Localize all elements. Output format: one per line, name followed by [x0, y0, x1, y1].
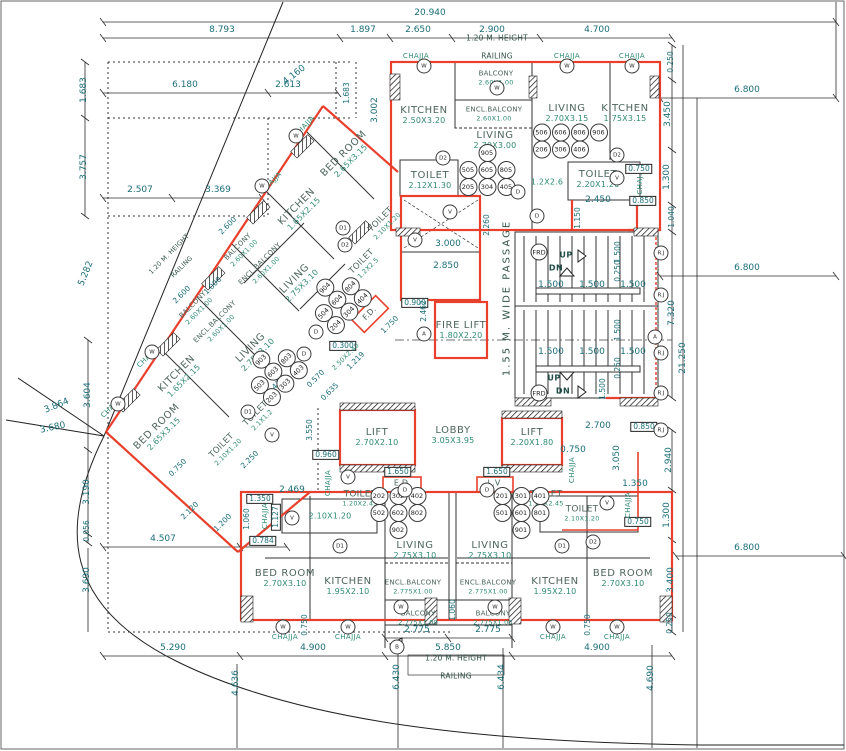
room-living-tr: LIVING 2.70X3.15	[546, 97, 589, 123]
dim-2462: 2.462	[420, 300, 428, 321]
dim-tread-v2: 1.500	[614, 319, 622, 340]
dim-6430: 6.430	[393, 664, 403, 690]
vent-mark: V	[265, 428, 280, 443]
dim-1300-b: 1.300	[663, 502, 673, 528]
stair-up-2: UP	[547, 375, 560, 384]
room-encl-balcony-br: ENCL.BALCONY 2.775X1.00	[460, 571, 516, 596]
room-bedroom-bl: BED ROOM 2.70X3.10	[255, 562, 315, 588]
railing-note-bottom: 1.20 M. HEIGHT RAILING	[425, 646, 487, 681]
chaj-right-top: CHAJ.	[637, 173, 645, 194]
room-toilet-bl: 2.10X1.20	[309, 513, 352, 522]
a-mark: A	[648, 330, 663, 345]
dim-1040: 1.040	[668, 206, 676, 227]
door-mark: D	[398, 483, 413, 498]
door-mark: D	[511, 185, 526, 200]
dim-tread-2: 1.500	[579, 281, 605, 291]
dim-tread-1: 1.500	[538, 281, 564, 291]
dim-4507: 4.507	[150, 535, 176, 545]
vent-mark: V	[341, 470, 356, 485]
dim-2260: 2.260	[483, 214, 491, 235]
room-bedroom-br: BED ROOM 2.70X3.10	[593, 562, 653, 588]
room-kitchen-br: KITCHEN 1.95X2.10	[531, 570, 579, 596]
dim-3400: 3.400	[667, 567, 677, 593]
rj-mark: R.J	[654, 346, 669, 361]
window-mark: W	[546, 620, 561, 635]
dim-2775-r: 2.775	[475, 626, 501, 636]
dim-1683-inner: 1.683	[343, 82, 351, 103]
window-mark: W	[289, 129, 304, 144]
unit-cluster-bottom-right: 201301401 501601801 901	[493, 488, 550, 538]
vent-mark: V	[610, 171, 625, 186]
rj-mark: R.J	[654, 423, 669, 438]
window-mark: W	[610, 620, 625, 635]
dim-0960: 0.960	[312, 450, 339, 460]
rj-mark: R.J	[654, 288, 669, 303]
chajja-bot-2: CHAJJA	[335, 634, 361, 642]
stair-up-1: UP	[559, 252, 572, 261]
dim-1150: 1.150	[574, 207, 582, 228]
dim-top-4700: 4.700	[584, 26, 610, 36]
dim-4690: 4.690	[647, 665, 657, 691]
dim-1060-balc: 1.060	[449, 599, 457, 620]
door-mark: D	[530, 209, 545, 224]
door1-mark: D1	[336, 221, 351, 236]
chajja-bot-3: CHAJJA	[540, 634, 566, 642]
dim-mid-v2: 0.250	[614, 357, 622, 378]
fire-door-mark: FRD	[531, 385, 548, 402]
fire-door-mark: FRD	[531, 244, 548, 261]
dim-3604: 3.604	[84, 382, 94, 408]
room-encl-balcony-bl: ENCL.BALCONY 2.775X1.00	[385, 571, 441, 596]
door2-mark: D2	[610, 148, 625, 163]
dim-top-1897: 1.897	[350, 26, 376, 36]
room-fire-lift: FIRE LIFT 1.80X2.20	[436, 314, 487, 340]
a-mark: A	[417, 327, 432, 342]
dim-mid-v1: 0.250	[614, 260, 622, 281]
dim-4636: 4.636	[232, 670, 242, 696]
room-name: KITCHEN	[400, 105, 448, 116]
vent-mark: V	[443, 205, 458, 220]
dim-3690: 3.690	[83, 567, 93, 593]
dim-tread-4: 1.500	[538, 348, 564, 358]
window-mark: W	[560, 59, 575, 74]
dim-top-8793: 8.793	[209, 26, 235, 36]
dim-1683-left: 1.683	[80, 77, 90, 103]
unit-cluster-bottom-left: 202302402 502602802 902	[370, 488, 427, 538]
dim-2450: 2.450	[585, 196, 611, 206]
dim-0750-br: 0.750	[584, 614, 592, 635]
dim-tread-3: 1.500	[620, 281, 646, 291]
dim-tread-5: 1.500	[579, 348, 605, 358]
dim-0250-bot: 0.250	[666, 612, 674, 633]
door1-mark: D1	[241, 405, 256, 420]
window-mark: W	[255, 179, 270, 194]
chajja-bot-1: CHAJJA	[272, 634, 298, 642]
door1-mark: D1	[333, 539, 348, 554]
stair-dn-1: DN	[549, 265, 563, 274]
door-mark: D	[297, 347, 312, 362]
dim-6180: 6.180	[172, 81, 198, 91]
room-toilet-tc: TOILET 2.12X1.30	[409, 164, 452, 190]
rj-mark: R.J	[654, 246, 669, 261]
passage-label: 1.55 M. WIDE PASSAGE	[502, 220, 513, 376]
window-mark: W	[490, 81, 505, 96]
dim-6800-top: 6.800	[734, 86, 760, 96]
vent-mark: V	[285, 511, 300, 526]
dim-3050: 3.050	[613, 445, 623, 471]
door2-mark: D2	[436, 151, 451, 166]
chajja-w5: CHAJJA	[262, 503, 270, 529]
railing-note-top: 1.20 M. HEIGHT RAILING	[466, 26, 528, 61]
dim-1300-a: 1.300	[663, 164, 673, 190]
window-mark: W	[394, 600, 409, 615]
chajja-lobby-right1: CHAJJA	[569, 457, 577, 483]
dim-tread-6: 1.500	[620, 348, 646, 358]
dim-3450: 3.450	[664, 101, 674, 127]
window-mark: W	[417, 59, 432, 74]
unit-cluster-top-right: 506606806906 206306406	[532, 125, 608, 158]
dim-1650-ed: 1.650	[384, 467, 411, 477]
rj-mark: R.J	[654, 386, 669, 401]
room-lobby: LOBBY 3.05X3.95	[432, 419, 475, 445]
room-duct-tr: 1.2X2.6	[531, 179, 563, 188]
dim-1060-wing: 1.060	[243, 508, 251, 529]
door-mark: D	[480, 483, 495, 498]
dim-3000: 3.000	[435, 240, 461, 250]
dim-6800-bot: 6.800	[734, 544, 760, 554]
dim-2469: 2.469	[279, 486, 305, 496]
floor-plan-canvas: 20.940 8.793 1.897 2.650 2.900 4.700 6.1…	[0, 0, 846, 751]
dim-3757: 3.757	[80, 154, 90, 180]
dim-3550: 3.550	[306, 419, 314, 440]
dim-6434: 6.434	[498, 664, 508, 690]
room-encl-balcony-top: ENCL.BALCONY 2.60X1.00	[466, 98, 522, 123]
window-mark: W	[111, 397, 126, 412]
dim-tread-v3: 1.500	[599, 378, 607, 399]
door1-mark: D1	[555, 539, 570, 554]
dim-3369: 3.369	[205, 186, 231, 196]
dim-5290: 5.290	[160, 644, 186, 654]
unit-cluster-top-center: 905 505605805 205304405	[459, 145, 516, 195]
room-size: 2.50X3.20	[400, 116, 448, 125]
door2-mark: D2	[586, 535, 601, 550]
room-kitchen-bl: KITCHEN 1.95X2.10	[324, 570, 372, 596]
room-kitchen-tr: KITCHEN 1.75X3.15	[601, 97, 649, 123]
dim-0750-bl: 0.750	[301, 614, 309, 635]
dim-21250: 21.250	[679, 342, 689, 374]
chajja-bot-4: CHAJJA	[604, 634, 630, 642]
dim-2700: 2.700	[585, 422, 611, 432]
door2-mark: D2	[338, 238, 353, 253]
dim-0784: 0.784	[249, 536, 276, 546]
dim-1350: 1.350	[622, 480, 648, 490]
chajja-lobby-left: CHAJJA	[325, 470, 333, 496]
room-lift-right: LIFT 2.20X1.80	[511, 421, 554, 447]
dim-0056: 0.056	[83, 520, 91, 541]
window-mark: W	[341, 620, 356, 635]
dim-1650-lv: 1.650	[483, 467, 510, 477]
b-mark: B	[390, 640, 405, 655]
room-lift-left: LIFT 2.70X2.10	[356, 421, 399, 447]
window-mark: W	[625, 59, 640, 74]
dim-0750-c: 0.750	[624, 517, 651, 527]
room-toilet-br: TOILET 2.10X1.20	[564, 497, 599, 522]
dim-2850: 2.850	[433, 262, 459, 272]
dim-2507: 2.507	[127, 186, 153, 196]
dim-top-2650: 2.650	[405, 26, 431, 36]
dim-0250-top: 0.250	[667, 51, 675, 72]
dim-0750-b: 0.750	[560, 446, 586, 456]
room-kitchen-tl: KITCHEN 2.50X3.20	[400, 99, 448, 125]
chajja-lobby-right2: CHAJJA	[625, 492, 633, 518]
stair-dn-2: DN	[556, 388, 570, 397]
dim-6800-mid: 6.800	[734, 264, 760, 274]
dim-0850-a: 0.850	[629, 196, 656, 206]
dim-total-width: 20.940	[414, 9, 446, 19]
dim-2940: 2.940	[665, 447, 675, 473]
dim-1127: 1.127	[271, 503, 281, 530]
unit-badge: 905	[478, 144, 496, 162]
window-mark: W	[145, 345, 160, 360]
dim-2775-l: 2.775	[404, 626, 430, 636]
dim-3002: 3.002	[371, 97, 381, 123]
vent-mark: V	[408, 233, 423, 248]
dim-4900-l: 4.900	[300, 644, 326, 654]
window-mark: W	[488, 600, 503, 615]
dim-4900-r: 4.900	[584, 644, 610, 654]
dim-7320: 7.320	[668, 300, 678, 326]
dim-3190: 3.190	[83, 479, 93, 505]
window-mark: W	[276, 620, 291, 635]
door-mark: D	[309, 325, 324, 340]
vent-mark: V	[600, 496, 615, 511]
